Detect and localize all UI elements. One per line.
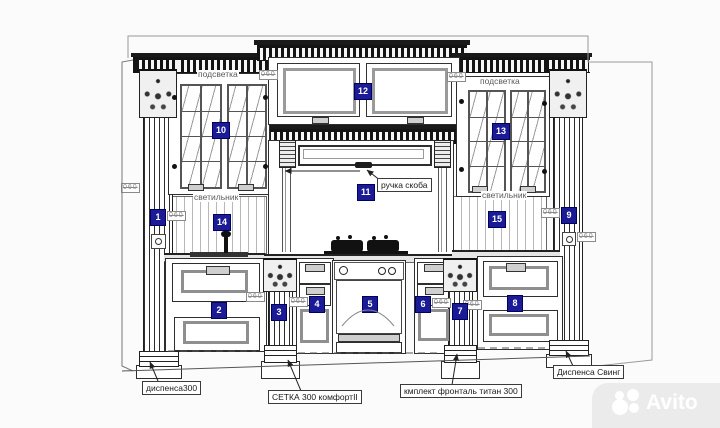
door-handle (407, 117, 424, 124)
burner-grate (384, 235, 388, 239)
dimension-tag: 060 (577, 232, 596, 242)
hood-handle (355, 162, 372, 168)
callout-6: 6 (415, 296, 431, 313)
left-pilaster-capital (139, 69, 177, 118)
hood-pilaster-left (282, 168, 291, 252)
light-dot (459, 99, 464, 104)
cabinet-door (300, 309, 329, 343)
left-pilaster-base (139, 351, 179, 367)
avito-logo-icon (629, 403, 639, 413)
sink-rim (190, 252, 248, 257)
lift-door-panel (283, 68, 356, 114)
drawer-handle (206, 266, 230, 275)
faucet (224, 236, 228, 253)
avito-logo-icon (612, 399, 628, 415)
drawer-panel (183, 321, 249, 344)
column-7-capital (443, 258, 477, 292)
callout-10: 10 (212, 122, 230, 139)
light-dot (172, 95, 177, 100)
label-backlight-left: подсветка (197, 70, 239, 79)
dimension-tag: 060 (541, 208, 560, 218)
door-handle (312, 117, 329, 124)
callout-15: 15 (488, 211, 506, 228)
dimension-tag: 060 (432, 298, 451, 308)
label-handle-bracket: ручка скоба (377, 178, 432, 192)
cabinet-door (418, 309, 449, 341)
callout-9: 9 (561, 207, 577, 224)
drawer-handle (306, 287, 325, 295)
glass-door (468, 90, 506, 193)
hood-corbel-left (279, 140, 296, 168)
light-dot (459, 167, 464, 172)
callout-8: 8 (507, 295, 523, 312)
callout-14: 14 (213, 214, 231, 231)
label-backlight-right: подсветка (479, 77, 521, 86)
label-dispenser-300: диспенса300 (142, 381, 201, 395)
callout-2: 2 (211, 302, 227, 319)
column-7-foot (441, 361, 480, 379)
drawer-panel (489, 314, 549, 336)
oven-knob (339, 266, 348, 275)
right-pilaster-base (549, 340, 589, 356)
burner-grate (372, 236, 376, 240)
door-handle (238, 184, 254, 191)
hood-corbel-right (434, 140, 451, 168)
oven-handle (338, 334, 400, 342)
cooktop-base (324, 251, 408, 254)
callout-11: 11 (357, 184, 375, 201)
oven-drawer (336, 342, 402, 353)
avito-logo-icon (627, 389, 639, 401)
watermark-area: Avito (592, 383, 720, 428)
burner-grate (336, 236, 340, 240)
dimension-tag: 060 (259, 70, 278, 80)
kitchen-elevation-drawing: подсветка подсветка светильник светильни… (0, 0, 720, 428)
faucet-spout (221, 231, 231, 237)
oven-knob (388, 267, 396, 275)
label-light-left: светильник (193, 193, 239, 202)
label-mesh-300: СЕТКА 300 комфортII (268, 390, 362, 404)
callout-5: 5 (362, 296, 378, 313)
light-dot (542, 169, 547, 174)
column-7-base (444, 345, 477, 363)
light-dot (542, 101, 547, 106)
column-3-base (264, 345, 297, 363)
callout-1: 1 (150, 209, 166, 226)
column-3-foot (261, 361, 300, 379)
watermark-brand: Avito (646, 391, 698, 415)
lift-door-panel (372, 68, 448, 114)
left-pilaster-socket (151, 234, 166, 249)
hood-pilaster-right (438, 168, 447, 252)
label-light-right: светильник (481, 191, 527, 200)
drawer-handle (424, 264, 444, 272)
dimension-tag: 060 (246, 292, 265, 302)
callout-12: 12 (354, 83, 372, 100)
callout-7: 7 (452, 303, 468, 320)
light-dot (263, 164, 268, 169)
glass-door (227, 84, 267, 189)
drawer-handle (425, 287, 444, 295)
dimension-tag: 060 (289, 297, 308, 307)
right-pilaster-capital (549, 69, 587, 118)
callout-4: 4 (309, 296, 325, 313)
light-dot (172, 164, 177, 169)
column-3-capital (263, 258, 297, 292)
drawer-handle (506, 263, 526, 272)
dimension-tag: 060 (447, 72, 466, 82)
oven-knob (378, 267, 386, 275)
label-front-set-titan: кмплект фронталь титан 300 (400, 384, 522, 398)
left-pilaster-foot (136, 365, 182, 379)
drawer-handle (305, 264, 325, 272)
dimension-tag: 060 (167, 211, 186, 221)
callout-13: 13 (492, 123, 510, 140)
burner-grate (348, 235, 352, 239)
right-pilaster-socket (562, 232, 576, 246)
label-dispenser-swing: Диспенса Свинг (553, 365, 624, 379)
glass-door (510, 90, 546, 193)
door-handle (188, 184, 204, 191)
callout-3: 3 (271, 304, 287, 321)
hood-panel-inner (303, 149, 424, 159)
dimension-tag: 060 (121, 183, 140, 193)
light-dot (263, 95, 268, 100)
